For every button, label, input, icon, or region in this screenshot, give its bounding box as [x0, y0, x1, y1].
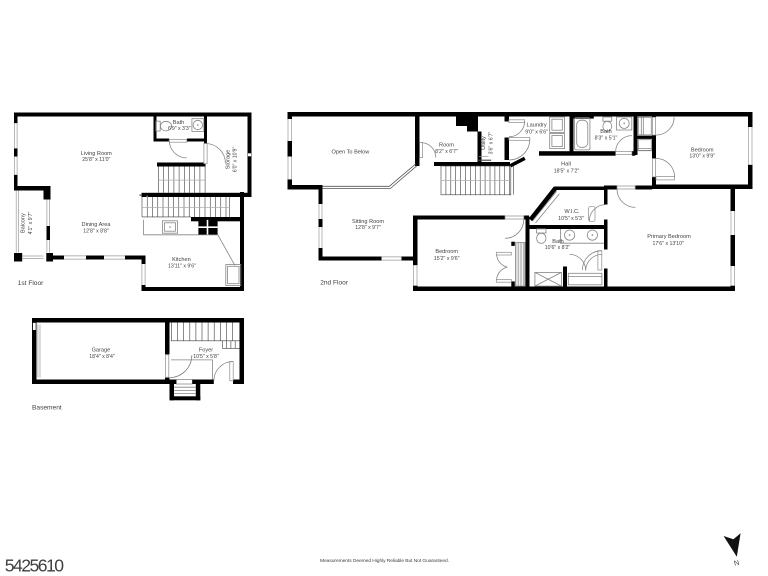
- svg-text:Sitting Room: Sitting Room: [352, 219, 384, 225]
- svg-text:6'0" x 10'9": 6'0" x 10'9": [233, 147, 239, 173]
- svg-text:Room: Room: [439, 143, 454, 149]
- svg-text:Bedroom: Bedroom: [691, 148, 714, 154]
- svg-text:4'1" x 9'7": 4'1" x 9'7": [28, 212, 34, 235]
- svg-text:10'5" x 5'3": 10'5" x 5'3": [558, 216, 584, 222]
- svg-text:Open To Below: Open To Below: [331, 150, 370, 156]
- svg-text:Hall: Hall: [561, 161, 571, 167]
- svg-text:Garage: Garage: [92, 348, 111, 354]
- svg-text:2nd Floor: 2nd Floor: [320, 280, 349, 287]
- svg-text:13'11" x 9'6": 13'11" x 9'6": [168, 264, 196, 270]
- svg-text:9'0" x 6'6": 9'0" x 6'6": [525, 129, 548, 135]
- svg-text:Bath: Bath: [173, 120, 185, 126]
- svg-text:Kitchen: Kitchen: [172, 257, 191, 263]
- svg-text:12'8" x 9'7": 12'8" x 9'7": [355, 225, 381, 231]
- svg-text:Laundry: Laundry: [526, 123, 546, 129]
- svg-text:Primary Bedroom: Primary Bedroom: [647, 234, 691, 240]
- svg-text:15'2" x 9'6": 15'2" x 9'6": [434, 256, 460, 262]
- svg-text:12'8" x 8'8": 12'8" x 8'8": [83, 228, 109, 234]
- svg-text:18'4" x 8'4": 18'4" x 8'4": [89, 354, 115, 360]
- svg-text:Living Room: Living Room: [81, 151, 112, 157]
- svg-text:5425610: 5425610: [5, 556, 65, 576]
- svg-text:6'9" x 3'3": 6'9" x 3'3": [168, 126, 191, 132]
- svg-text:10'5" x 5'8": 10'5" x 5'8": [193, 354, 219, 360]
- svg-text:Dining Area: Dining Area: [82, 222, 112, 228]
- svg-text:Storage: Storage: [225, 150, 231, 170]
- svg-text:Balcony: Balcony: [21, 213, 27, 233]
- svg-text:8'2" x 6'7": 8'2" x 6'7": [435, 149, 458, 155]
- svg-text:3'6" x 6'7": 3'6" x 6'7": [489, 132, 495, 155]
- svg-text:Utility: Utility: [481, 136, 487, 150]
- svg-text:Bath: Bath: [600, 129, 612, 135]
- svg-text:13'0" x 9'9": 13'0" x 9'9": [689, 154, 715, 160]
- svg-text:1st Floor: 1st Floor: [18, 280, 44, 287]
- svg-text:Foyer: Foyer: [199, 348, 213, 354]
- svg-text:W.I.C.: W.I.C.: [564, 209, 580, 215]
- svg-text:17'6" x 13'10": 17'6" x 13'10": [653, 241, 684, 247]
- svg-text:18'5" x 7'2": 18'5" x 7'2": [554, 168, 580, 174]
- svg-text:Measurements Deemed Highly Rel: Measurements Deemed Highly Reliable But …: [320, 558, 449, 564]
- svg-text:10'6" x 8'2": 10'6" x 8'2": [545, 245, 571, 251]
- svg-text:Basement: Basement: [32, 404, 62, 411]
- svg-text:25'8" x 11'0": 25'8" x 11'0": [82, 157, 110, 163]
- svg-text:Bedroom: Bedroom: [435, 249, 458, 255]
- svg-text:8'3" x 5'1": 8'3" x 5'1": [595, 136, 618, 142]
